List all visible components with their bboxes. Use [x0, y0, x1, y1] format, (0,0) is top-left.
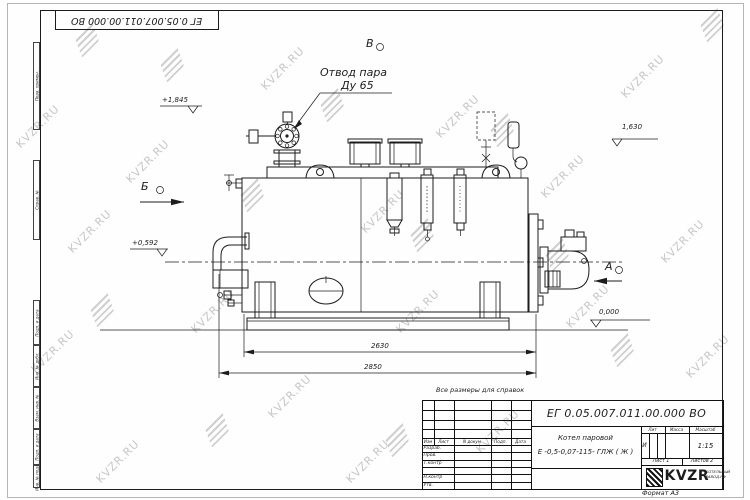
- tb-line: [657, 433, 658, 458]
- front-door: [529, 214, 543, 312]
- dimension-2630: 2630: [371, 342, 389, 350]
- callout-steam-outlet-line2: Ду 65: [341, 79, 374, 92]
- steam-outlet-valve: [246, 112, 300, 167]
- tb-line: [531, 468, 641, 469]
- tb-col-list: Лист: [434, 438, 454, 445]
- tb-line: [511, 401, 512, 489]
- tb-line: [649, 433, 650, 458]
- burner: [540, 230, 589, 293]
- probe-and-coil: [508, 122, 527, 178]
- tb-scale-value: 1:15: [689, 433, 723, 458]
- dimension-2850: 2850: [364, 363, 382, 371]
- tb-sheet-info: Лист 1: [641, 458, 682, 465]
- tb-row-razrab: Разраб.: [423, 445, 454, 452]
- format-label: Формат А3: [642, 489, 679, 497]
- view-arrows: [140, 44, 623, 285]
- tb-sheets-info: Листов 2: [682, 458, 723, 465]
- tb-line: [423, 410, 531, 411]
- tb-col-data: Дата: [511, 438, 531, 445]
- tb-line: [423, 429, 531, 430]
- tb-doc-number: ЕГ 0.05.007.011.00.000 ВО: [531, 401, 723, 426]
- tb-line: [491, 401, 492, 489]
- water-level-gauges: [387, 169, 466, 241]
- tb-col-izm: Изм: [423, 438, 434, 445]
- tb-line: [454, 401, 455, 489]
- kvzr-logo-sub2: ЗАВОД.РФ: [706, 475, 726, 479]
- tb-product-name-2: Е -0,5-0,07-115- ГЛЖ ( Ж ): [531, 443, 641, 461]
- reference-note: Все размеры для справок: [436, 386, 524, 394]
- view-label-v: В: [366, 37, 374, 50]
- kvzr-logo-icon: [646, 468, 663, 487]
- manhole: [309, 276, 343, 304]
- view-label-b: Б: [141, 180, 149, 193]
- rear-fittings: [213, 175, 249, 306]
- elevation-valve-top: +1,845: [162, 96, 188, 104]
- tb-col-docnum: N докум: [454, 438, 491, 445]
- drawing-sheet: KVZR.RU KVZR.RU KVZR.RU KVZR.RU KVZR.RU …: [0, 0, 750, 500]
- dashed-sensor: [477, 112, 495, 167]
- tb-row-tkontr: Т.контр: [423, 460, 454, 467]
- view-label-a: А: [605, 260, 613, 273]
- callout-steam-outlet-line1: Отвод пара: [320, 66, 387, 79]
- tb-line: [423, 420, 531, 421]
- callout-leader: [294, 93, 392, 129]
- tb-row-nkontr: Н.контр: [423, 474, 454, 481]
- elevation-zero: 0,000: [599, 308, 619, 316]
- elevation-boiler-top: 1,630: [622, 123, 642, 131]
- elevation-burner-axis: +0,592: [132, 239, 158, 247]
- tb-row-prov: Пров.: [423, 452, 454, 459]
- tb-mass-label: Масса: [665, 426, 689, 433]
- safety-valve-boxes: [348, 139, 422, 167]
- title-block: Изм Лист N докум Подп. Дата Разраб. Пров…: [422, 400, 724, 490]
- tb-col-podp: Подп.: [491, 438, 511, 445]
- tb-scale-label: Масштаб: [689, 426, 723, 433]
- tb-line: [423, 467, 531, 468]
- tb-line: [641, 465, 723, 466]
- kvzr-logo-text: KVZR: [665, 468, 710, 484]
- tb-lit-label: Лит: [641, 426, 665, 433]
- boiler-body: [242, 167, 528, 312]
- tb-lit-value: И: [641, 433, 649, 458]
- tb-row-utv: Утв.: [423, 482, 454, 489]
